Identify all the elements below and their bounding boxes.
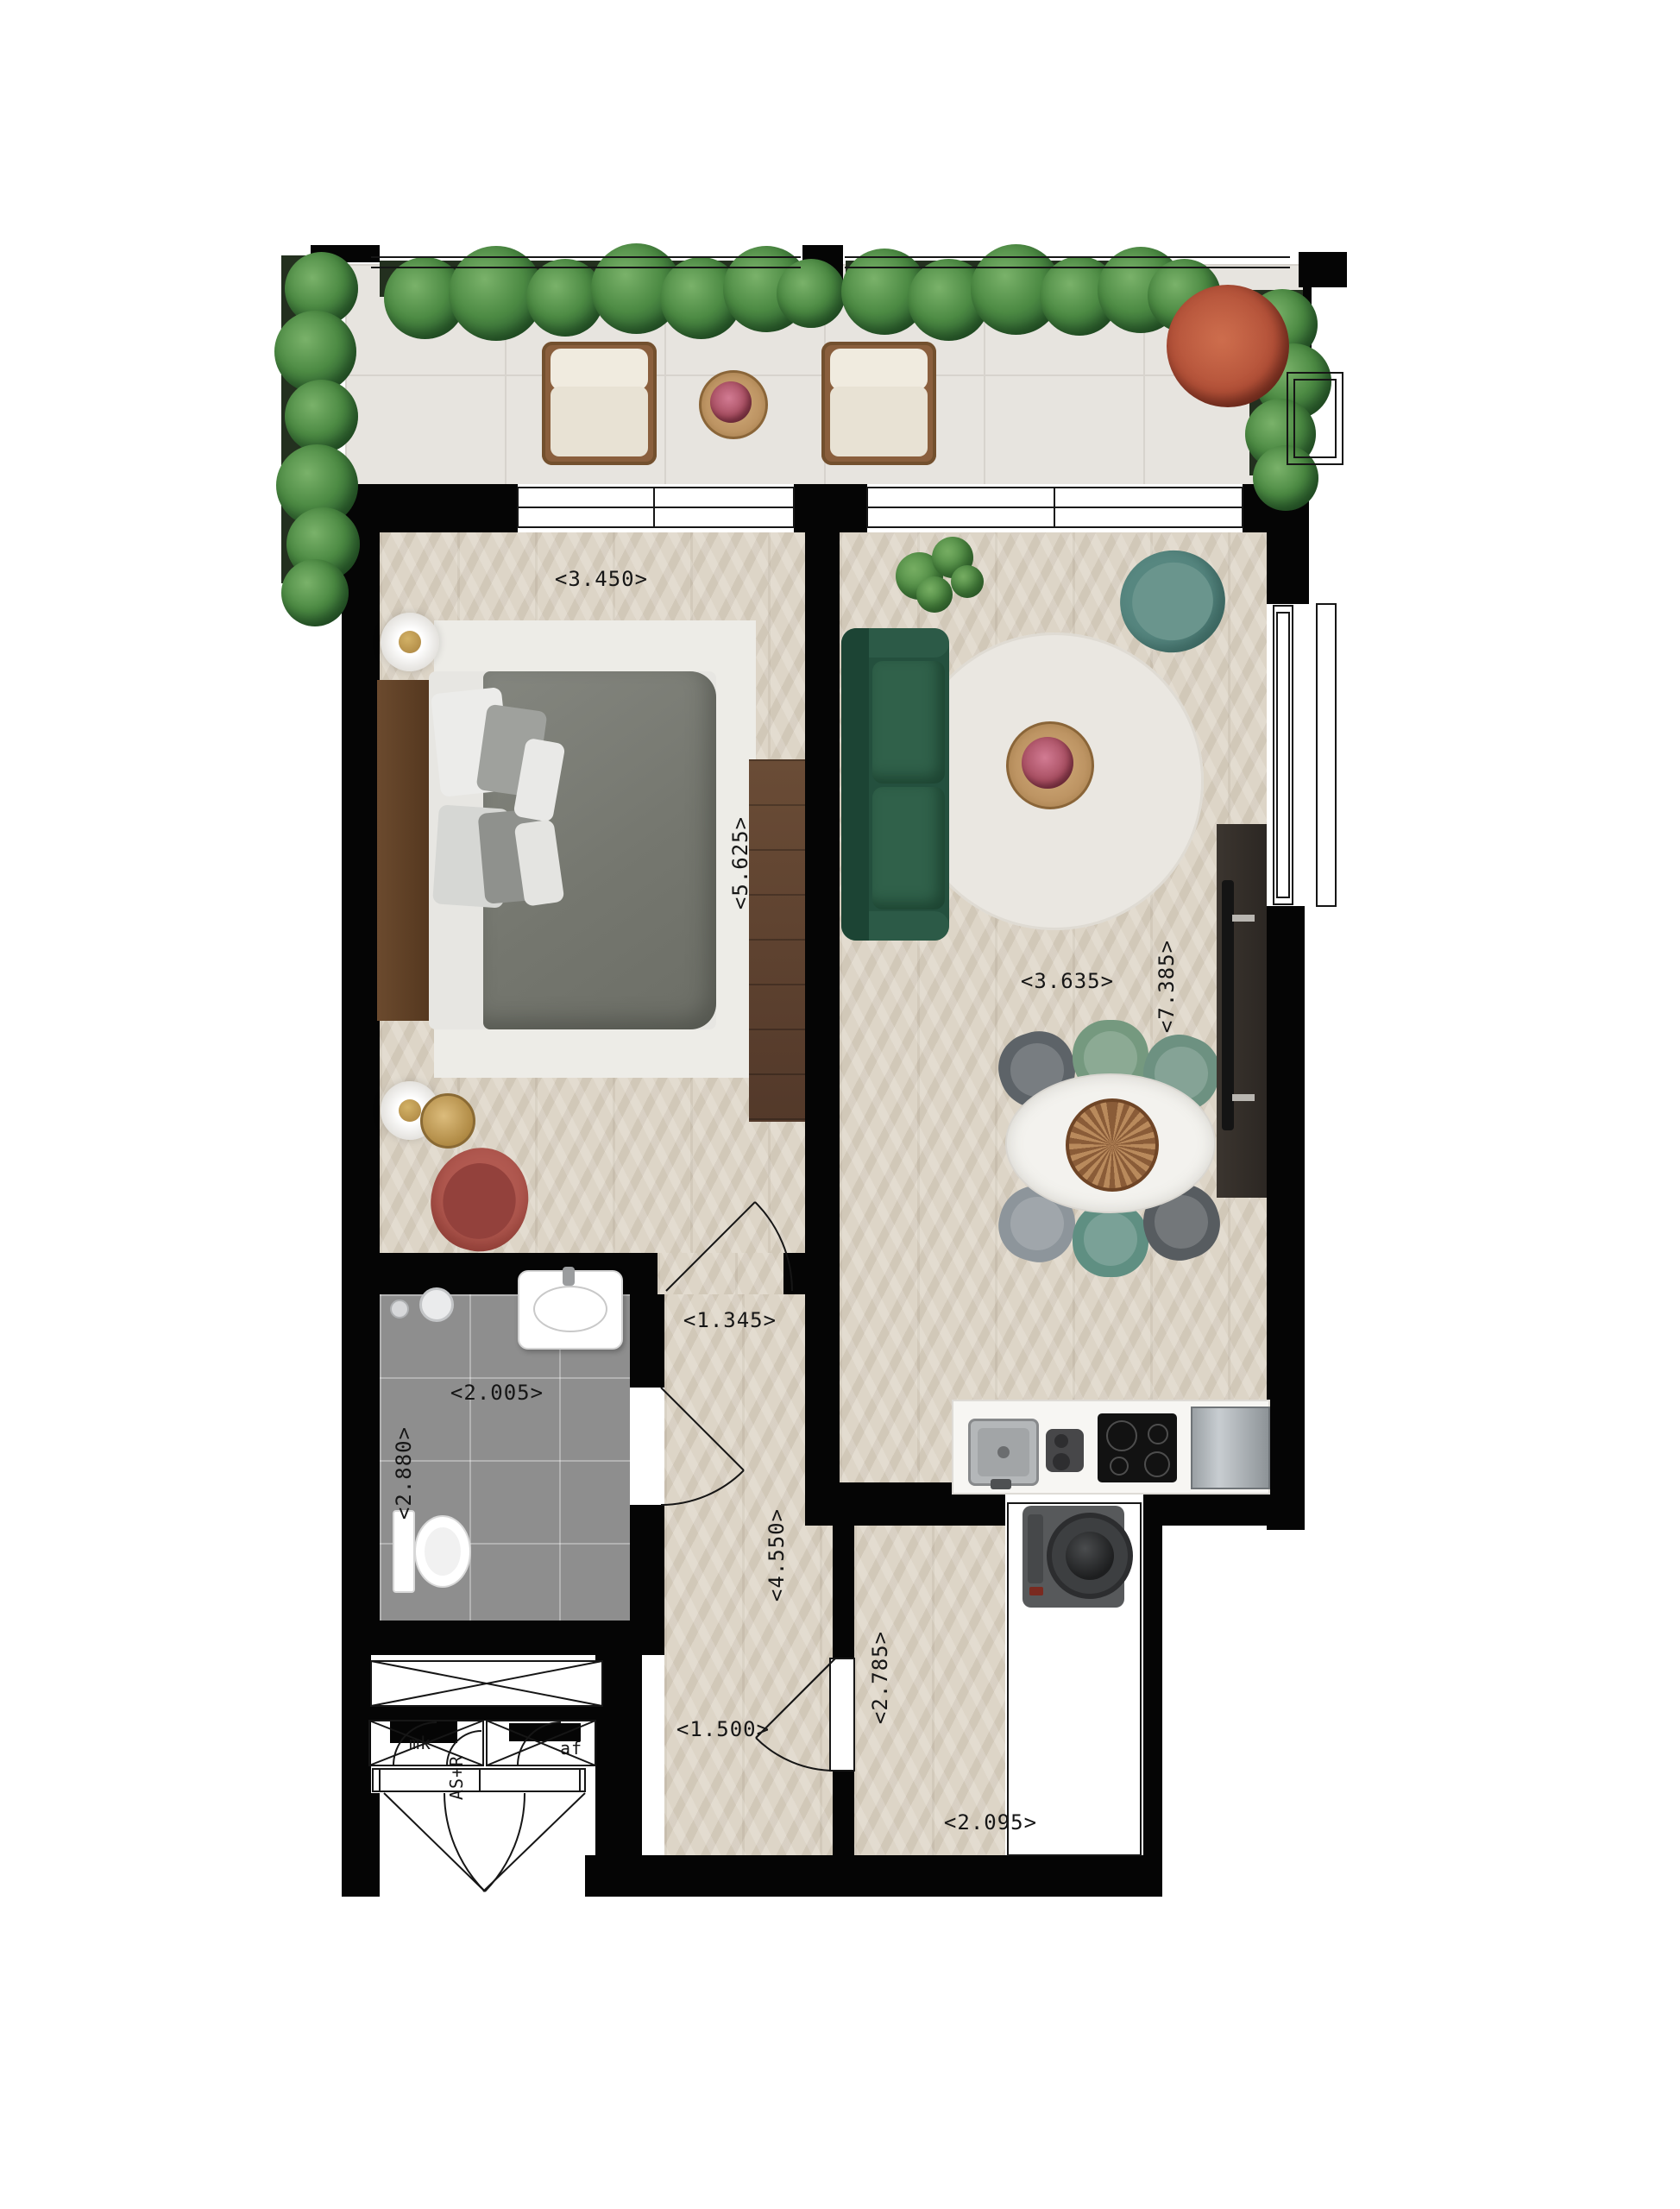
- dim-utility-depth: <2.785>: [868, 1631, 892, 1724]
- floor-plan: <3.450> <5.625> <3.635> <7.385> <2.005> …: [0, 0, 1680, 2209]
- dim-hallway-depth: <4.550>: [764, 1508, 789, 1602]
- plan-line-work: [0, 0, 1680, 2209]
- dim-bathroom-depth: <2.880>: [392, 1426, 416, 1520]
- dim-entry-width: <1.500>: [676, 1717, 770, 1741]
- dim-hallway-width: <1.345>: [683, 1308, 777, 1332]
- dim-bedroom-width: <3.450>: [555, 567, 648, 591]
- dim-living-depth: <7.385>: [1155, 940, 1179, 1033]
- dim-bathroom-width: <2.005>: [450, 1381, 544, 1405]
- dim-living-width: <3.635>: [1021, 969, 1114, 993]
- dim-utility-width: <2.095>: [944, 1810, 1037, 1835]
- label-drain: af: [560, 1738, 582, 1759]
- dim-bedroom-depth: <5.625>: [728, 816, 752, 909]
- label-shaft: AS+R: [446, 1755, 467, 1800]
- label-meter-closet: mk: [409, 1733, 431, 1753]
